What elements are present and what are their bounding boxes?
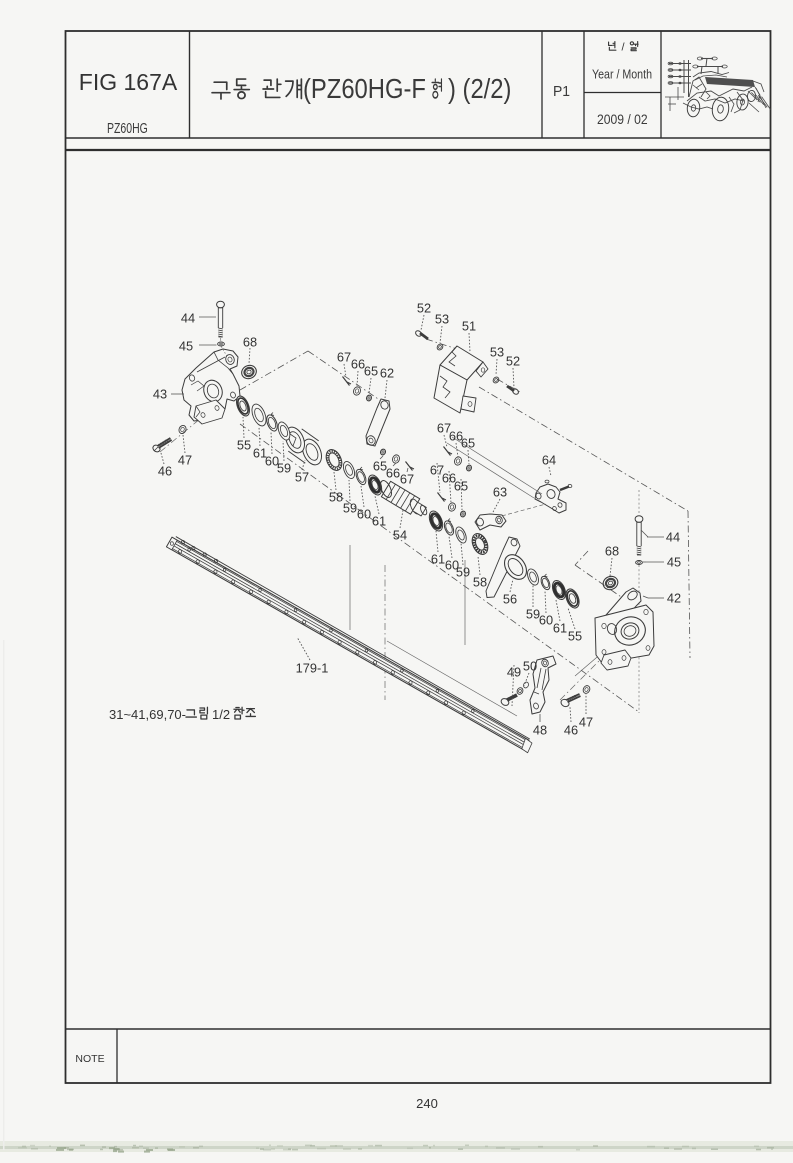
svg-text:44: 44	[181, 311, 195, 326]
svg-text:42: 42	[667, 591, 681, 606]
svg-text:46: 46	[158, 464, 172, 479]
svg-text:44: 44	[666, 530, 680, 545]
svg-text:46: 46	[564, 723, 578, 738]
svg-text:61: 61	[553, 621, 567, 636]
svg-text:45: 45	[667, 555, 681, 570]
svg-text:45: 45	[179, 339, 193, 354]
svg-text:57: 57	[295, 470, 309, 485]
svg-text:55: 55	[568, 629, 582, 644]
svg-text:62: 62	[380, 366, 394, 381]
svg-text:1/2: 1/2	[212, 707, 230, 722]
svg-text:65: 65	[461, 436, 475, 451]
svg-text:68: 68	[605, 544, 619, 559]
svg-text:58: 58	[473, 575, 487, 590]
svg-text:61: 61	[431, 552, 445, 567]
svg-text:179-1: 179-1	[296, 661, 329, 676]
svg-text:67: 67	[337, 350, 351, 365]
svg-text:53: 53	[490, 345, 504, 360]
svg-text:60: 60	[357, 507, 371, 522]
svg-text:43: 43	[153, 387, 167, 402]
svg-text:P1: P1	[553, 84, 570, 101]
svg-text:240: 240	[416, 1096, 438, 1111]
svg-text:2009 / 02: 2009 / 02	[597, 111, 648, 127]
svg-text:63: 63	[493, 485, 507, 500]
svg-text:64: 64	[542, 453, 556, 468]
svg-text:31~41,69,70-: 31~41,69,70-	[109, 707, 186, 722]
svg-text:) (2/2): ) (2/2)	[448, 72, 511, 104]
svg-text:(PZ60HG-F: (PZ60HG-F	[303, 72, 426, 104]
svg-text:47: 47	[579, 715, 593, 730]
svg-text:59: 59	[456, 565, 470, 580]
svg-text:52: 52	[506, 354, 520, 369]
svg-text:Year / Month: Year / Month	[592, 66, 652, 81]
svg-text:48: 48	[533, 723, 547, 738]
svg-text:FIG 167A: FIG 167A	[79, 69, 178, 95]
svg-text:58: 58	[329, 490, 343, 505]
svg-text:50: 50	[523, 659, 537, 674]
svg-text:PZ60HG: PZ60HG	[107, 119, 148, 136]
svg-text:55: 55	[237, 438, 251, 453]
svg-text:60: 60	[539, 613, 553, 628]
svg-text:54: 54	[393, 528, 407, 543]
svg-text:68: 68	[243, 335, 257, 350]
svg-text:51: 51	[462, 319, 476, 334]
svg-text:53: 53	[435, 312, 449, 327]
svg-text:56: 56	[503, 592, 517, 607]
svg-text:65: 65	[364, 364, 378, 379]
svg-text:67: 67	[400, 472, 414, 487]
svg-text:61: 61	[372, 514, 386, 529]
svg-text:NOTE: NOTE	[75, 1053, 104, 1065]
svg-text:59: 59	[343, 501, 357, 516]
svg-text:52: 52	[417, 301, 431, 316]
svg-text:47: 47	[178, 453, 192, 468]
svg-text:66: 66	[386, 466, 400, 481]
svg-text:59: 59	[277, 461, 291, 476]
